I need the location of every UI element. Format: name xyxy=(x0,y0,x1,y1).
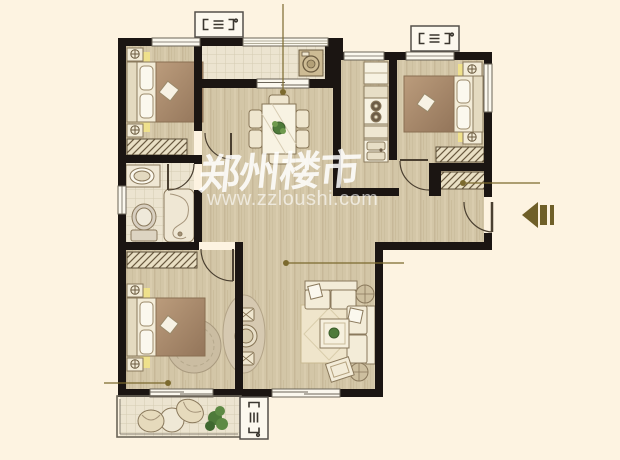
balcony-glazing xyxy=(243,38,328,46)
dining-chair xyxy=(296,130,309,148)
window xyxy=(344,52,384,60)
lamp-icon xyxy=(131,286,139,294)
leader-dot xyxy=(283,260,289,266)
window xyxy=(484,64,492,112)
washing-machine xyxy=(299,50,323,76)
ac-unit-icon xyxy=(411,26,459,51)
dining-chair xyxy=(296,110,309,128)
plant-icon xyxy=(329,328,339,338)
lounge-chair xyxy=(138,410,164,432)
ac-unit-icon xyxy=(195,12,243,37)
window xyxy=(152,38,200,46)
window xyxy=(118,186,126,214)
pillow xyxy=(140,302,153,326)
pillow xyxy=(348,308,363,323)
leader-dot xyxy=(165,380,171,386)
pillow xyxy=(140,66,153,90)
kitchen-fixtures xyxy=(364,62,388,162)
lamp-icon xyxy=(131,50,139,58)
leisure-table-set xyxy=(223,295,265,373)
lamp-icon xyxy=(468,133,476,141)
floor-plan-drawing xyxy=(0,0,620,460)
lamp-icon xyxy=(131,360,139,368)
lamp-icon xyxy=(468,65,476,73)
sliding-door xyxy=(272,389,340,397)
wardrobe xyxy=(436,147,484,162)
leader-dot xyxy=(460,180,466,186)
leader-dot xyxy=(280,89,286,95)
pillow xyxy=(457,106,470,129)
floor-plan-canvas: 郑州楼市 www.zzloushi.com xyxy=(0,0,620,460)
ac-unit-icon xyxy=(240,397,268,439)
entry-arrow-icon xyxy=(522,202,554,228)
dining-chair xyxy=(249,110,262,128)
pillow xyxy=(140,330,153,354)
pillow xyxy=(308,284,323,300)
pillow xyxy=(457,80,470,103)
toilet xyxy=(131,230,157,241)
sofa-seat xyxy=(347,335,367,363)
window xyxy=(406,52,454,60)
dining-chair xyxy=(249,130,262,148)
wardrobe xyxy=(127,139,187,155)
pillow xyxy=(140,94,153,118)
lamp-icon xyxy=(131,126,139,134)
wardrobe xyxy=(127,252,197,268)
